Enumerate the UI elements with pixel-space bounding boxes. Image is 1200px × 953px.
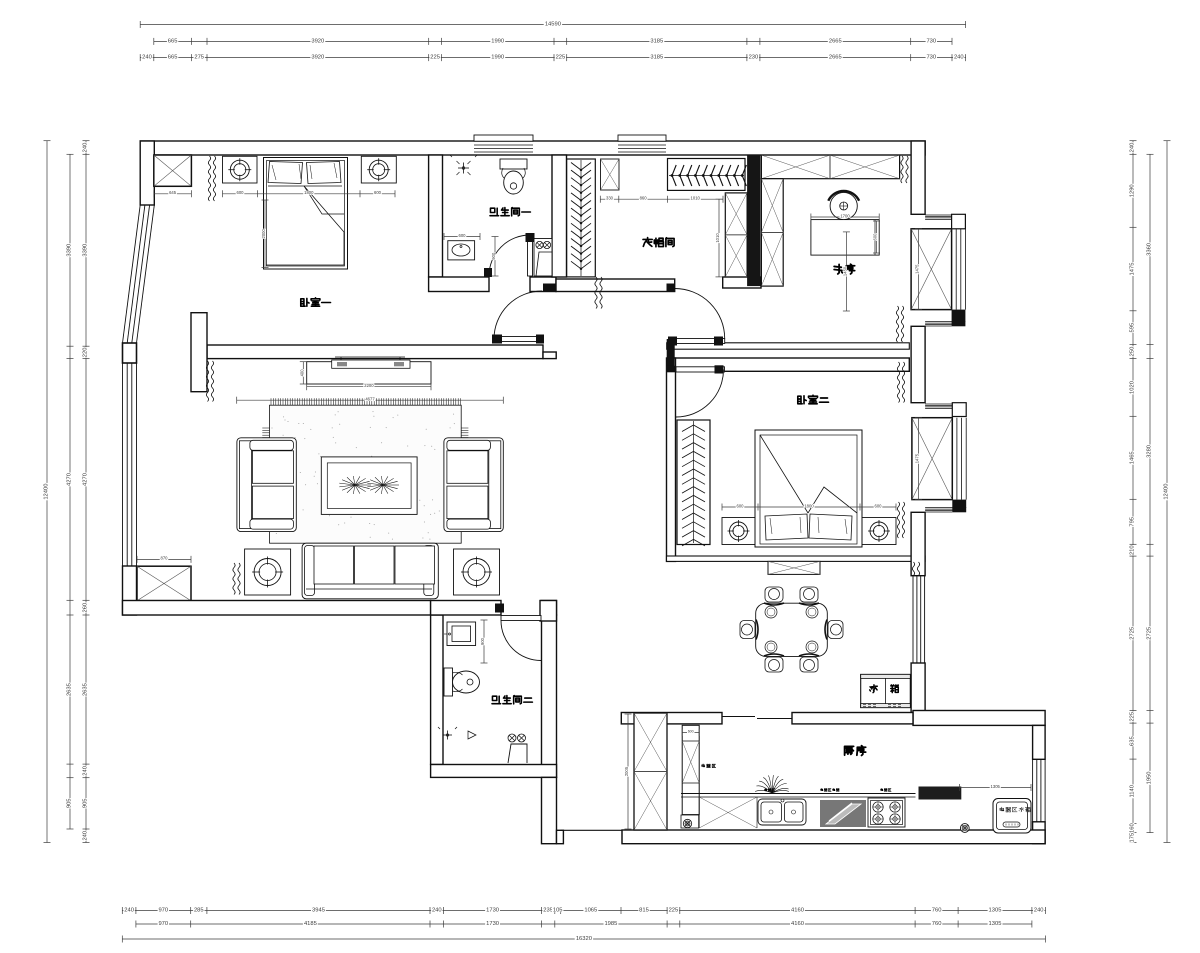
- svg-text:1305: 1305: [989, 921, 1002, 927]
- svg-text:1140: 1140: [1130, 785, 1136, 797]
- svg-text:14590: 14590: [545, 21, 561, 27]
- svg-text:600: 600: [374, 190, 382, 195]
- svg-text:1475: 1475: [1130, 263, 1136, 276]
- svg-text:4270: 4270: [83, 473, 89, 486]
- svg-text:3185: 3185: [650, 38, 663, 44]
- svg-text:1305: 1305: [991, 784, 1001, 789]
- svg-text:4185: 4185: [304, 921, 317, 927]
- svg-text:900: 900: [491, 252, 496, 260]
- svg-text:1985: 1985: [604, 921, 617, 927]
- svg-text:1010: 1010: [715, 233, 720, 243]
- svg-text:3920: 3920: [311, 55, 324, 61]
- svg-text:285: 285: [194, 907, 204, 913]
- svg-text:2665: 2665: [829, 38, 842, 44]
- svg-text:1990: 1990: [491, 38, 504, 44]
- svg-text:160: 160: [1130, 823, 1136, 833]
- svg-text:3390: 3390: [83, 244, 89, 257]
- svg-text:4160: 4160: [791, 907, 804, 913]
- svg-text:1465: 1465: [1130, 451, 1136, 464]
- svg-text:1990: 1990: [491, 55, 504, 61]
- svg-text:4270: 4270: [67, 473, 73, 486]
- svg-text:1305: 1305: [989, 907, 1002, 913]
- svg-text:600: 600: [873, 233, 878, 241]
- svg-text:240: 240: [954, 55, 964, 61]
- svg-text:870: 870: [161, 556, 169, 561]
- svg-text:275: 275: [194, 55, 204, 61]
- svg-text:4160: 4160: [791, 921, 804, 927]
- svg-text:1020: 1020: [1130, 381, 1136, 394]
- svg-text:970: 970: [158, 907, 168, 913]
- svg-text:12400: 12400: [1164, 484, 1170, 500]
- svg-text:2005: 2005: [624, 766, 629, 776]
- svg-text:225: 225: [1130, 712, 1136, 722]
- svg-text:175: 175: [1130, 833, 1136, 843]
- svg-text:225: 225: [669, 907, 679, 913]
- svg-text:815: 815: [639, 907, 649, 913]
- svg-text:665: 665: [168, 38, 178, 44]
- svg-text:635: 635: [1130, 736, 1136, 746]
- svg-text:1950: 1950: [1147, 771, 1153, 784]
- svg-text:1730: 1730: [486, 921, 499, 927]
- svg-text:400: 400: [299, 369, 304, 377]
- svg-text:2200: 2200: [364, 383, 374, 388]
- svg-text:3920: 3920: [311, 38, 324, 44]
- svg-text:795: 795: [1130, 517, 1136, 527]
- svg-text:665: 665: [168, 55, 178, 61]
- svg-text:3360: 3360: [1147, 243, 1153, 256]
- svg-text:240: 240: [124, 907, 134, 913]
- svg-text:2665: 2665: [829, 55, 842, 61]
- svg-text:730: 730: [926, 38, 936, 44]
- svg-text:2725: 2725: [1147, 627, 1153, 640]
- svg-text:220: 220: [83, 348, 89, 358]
- svg-text:900: 900: [480, 637, 485, 645]
- svg-text:240: 240: [1034, 907, 1044, 913]
- svg-text:1730: 1730: [486, 907, 499, 913]
- svg-text:240: 240: [432, 907, 442, 913]
- svg-text:860: 860: [640, 196, 648, 201]
- svg-text:240: 240: [83, 766, 89, 776]
- svg-text:600: 600: [875, 503, 883, 508]
- svg-text:905: 905: [67, 798, 73, 808]
- svg-text:905: 905: [83, 798, 89, 808]
- svg-text:970: 970: [158, 921, 168, 927]
- svg-text:225: 225: [556, 55, 566, 61]
- svg-text:2000: 2000: [261, 228, 266, 238]
- svg-text:16320: 16320: [576, 936, 592, 942]
- svg-text:240: 240: [83, 831, 89, 841]
- svg-text:225: 225: [430, 55, 440, 61]
- svg-text:2635: 2635: [83, 683, 89, 696]
- svg-text:1475: 1475: [915, 264, 920, 274]
- svg-text:1450: 1450: [842, 266, 847, 276]
- svg-text:760: 760: [932, 907, 942, 913]
- svg-text:250: 250: [1130, 347, 1136, 357]
- svg-text:760: 760: [932, 921, 942, 927]
- svg-text:240: 240: [83, 143, 89, 153]
- svg-text:12400: 12400: [44, 484, 50, 500]
- svg-text:600: 600: [688, 730, 694, 734]
- svg-text:230: 230: [749, 55, 759, 61]
- svg-text:595: 595: [1130, 323, 1136, 333]
- svg-text:600: 600: [237, 190, 245, 195]
- svg-text:3280: 3280: [1147, 445, 1153, 458]
- svg-text:240: 240: [142, 55, 152, 61]
- svg-text:1290: 1290: [1130, 184, 1136, 197]
- svg-text:1010: 1010: [691, 196, 701, 201]
- svg-text:1700: 1700: [840, 213, 850, 218]
- svg-text:3945: 3945: [312, 907, 325, 913]
- svg-text:600: 600: [459, 233, 467, 238]
- svg-text:330: 330: [606, 196, 614, 201]
- svg-text:2635: 2635: [67, 683, 73, 696]
- svg-text:4677: 4677: [365, 397, 375, 402]
- svg-text:105: 105: [553, 907, 563, 913]
- svg-text:235: 235: [543, 907, 553, 913]
- svg-text:600: 600: [737, 503, 745, 508]
- svg-text:260: 260: [83, 603, 89, 613]
- svg-text:2725: 2725: [1130, 627, 1136, 640]
- svg-text:3185: 3185: [650, 55, 663, 61]
- svg-text:240: 240: [1130, 143, 1136, 153]
- svg-text:1800: 1800: [304, 190, 314, 195]
- svg-text:730: 730: [926, 55, 936, 61]
- svg-text:645: 645: [169, 190, 177, 195]
- svg-text:3390: 3390: [67, 244, 73, 257]
- svg-text:210: 210: [1130, 545, 1136, 555]
- svg-text:1065: 1065: [584, 907, 597, 913]
- svg-text:1475: 1475: [915, 453, 920, 463]
- svg-text:1800: 1800: [804, 503, 814, 508]
